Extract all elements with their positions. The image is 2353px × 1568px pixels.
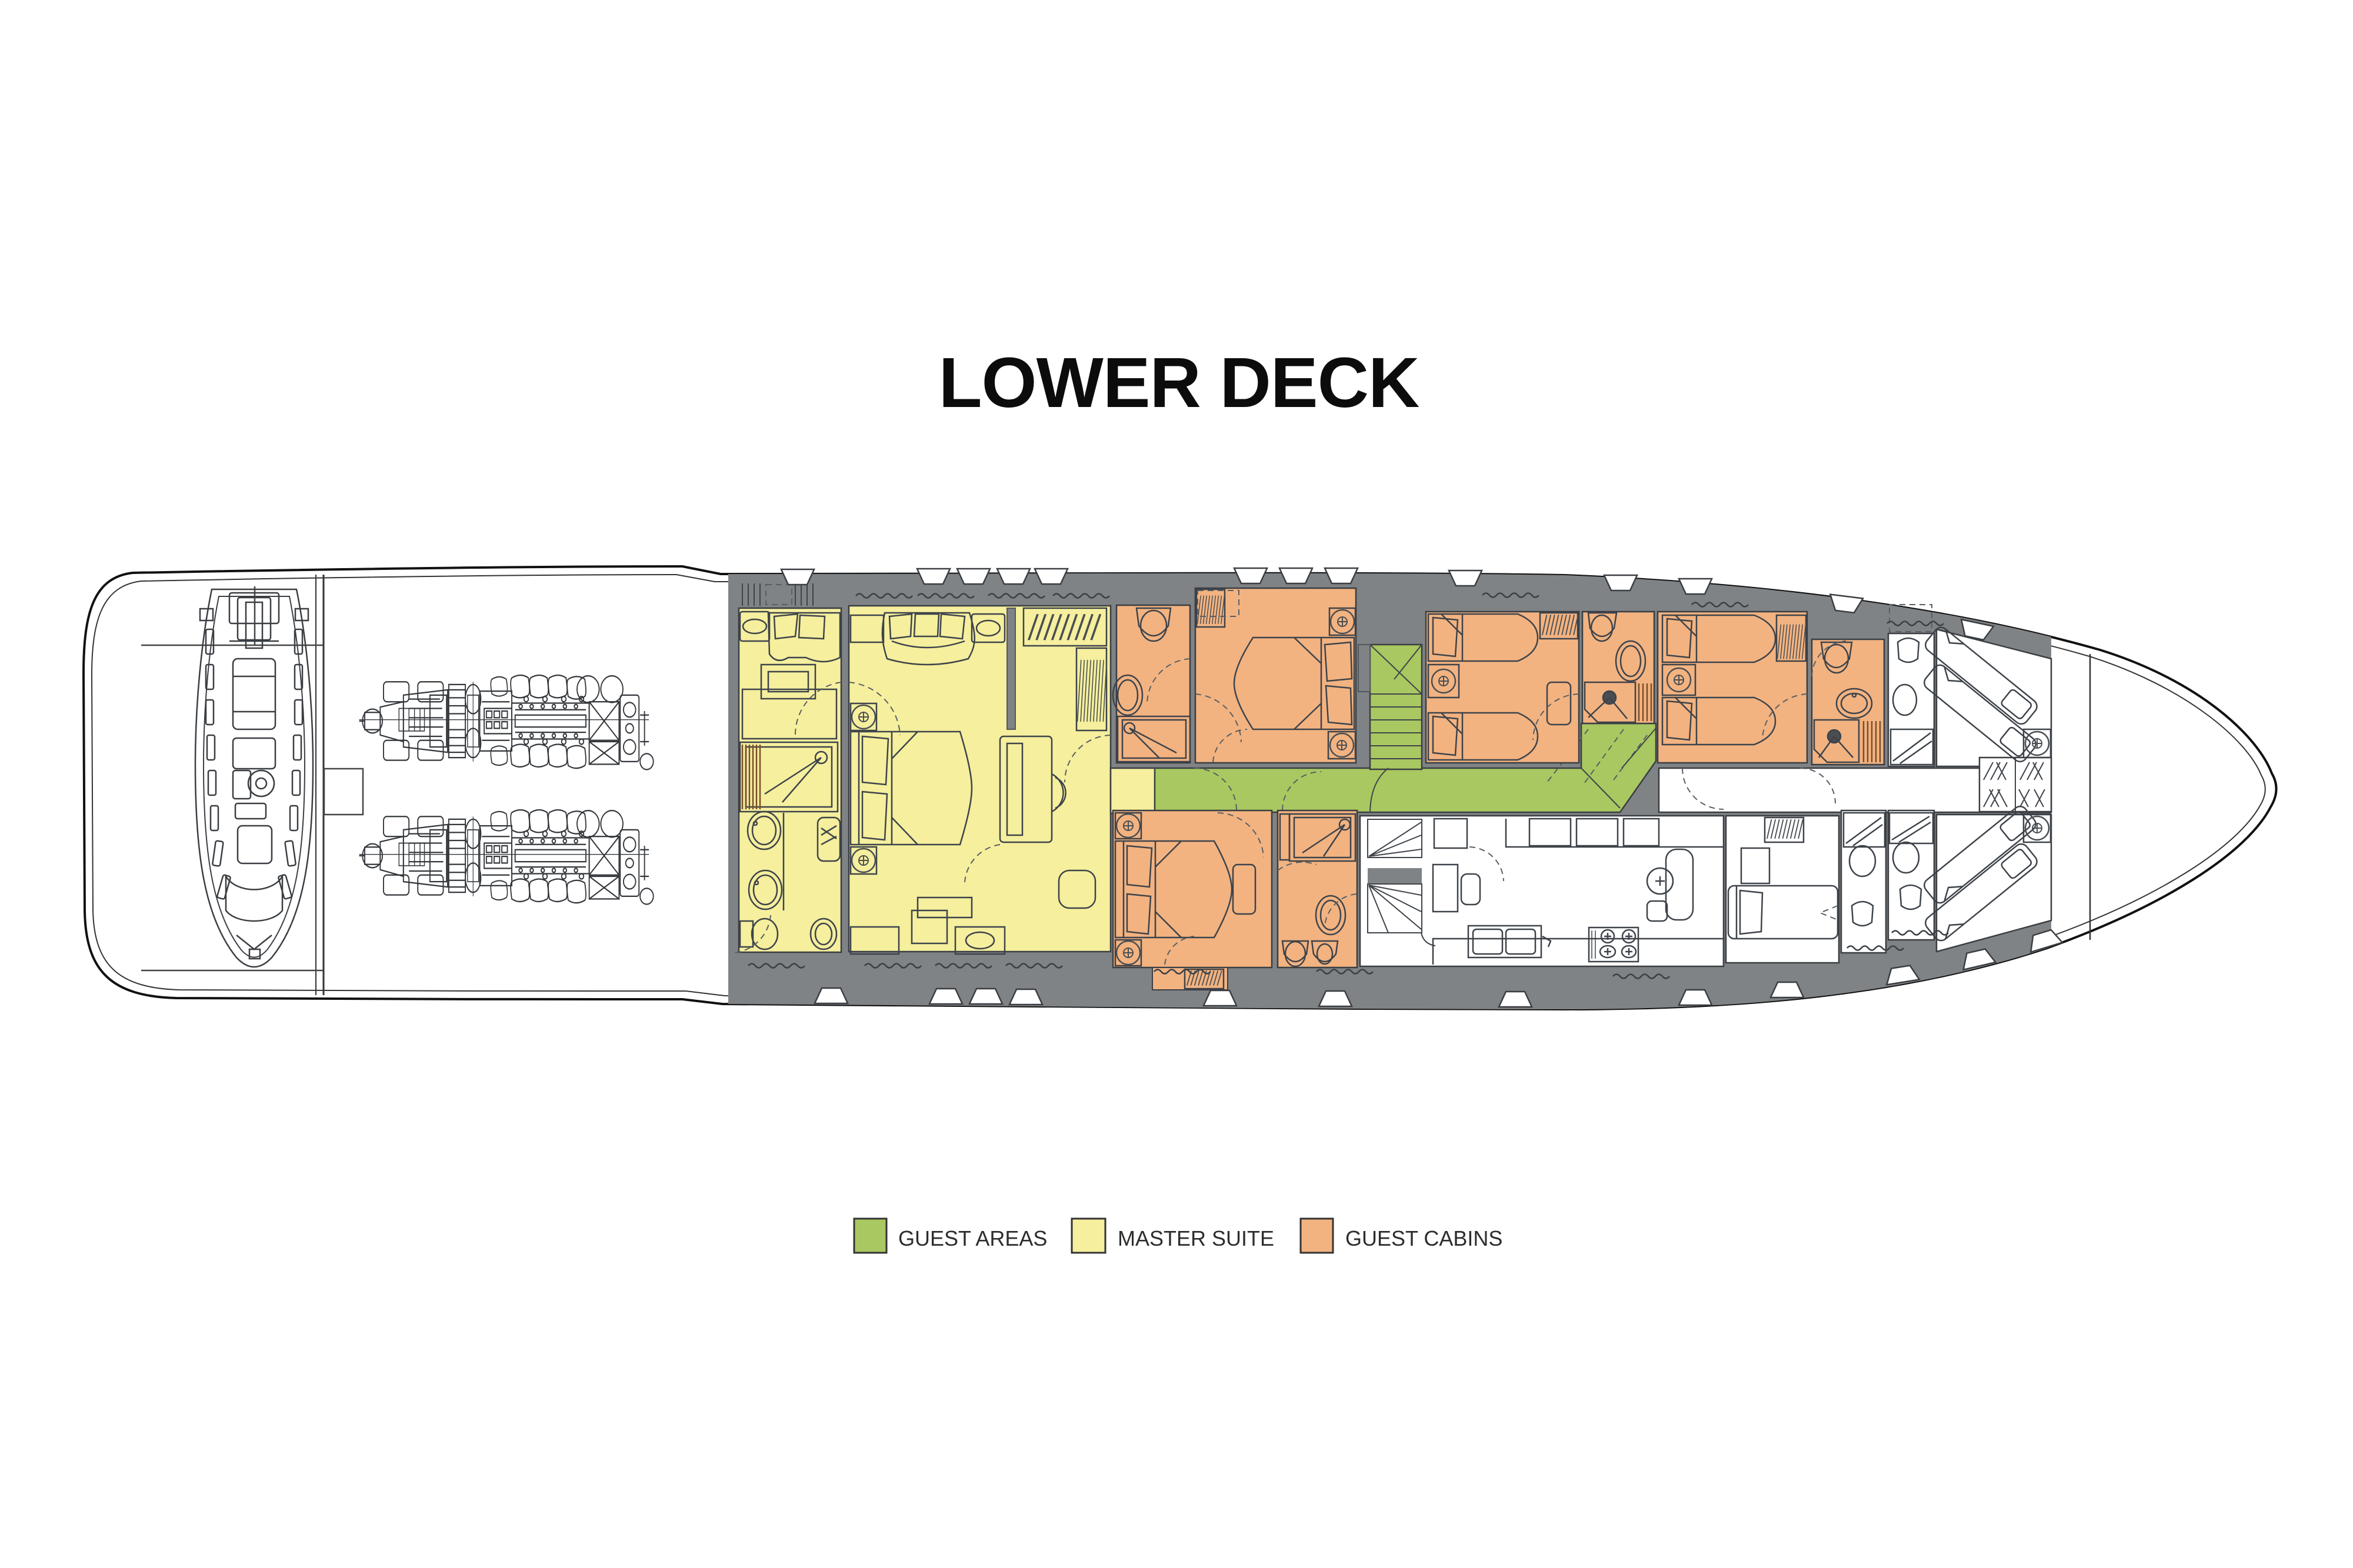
svg-text:MASTER SUITE: MASTER SUITE	[1118, 1226, 1274, 1250]
svg-text:LOWER DECK: LOWER DECK	[939, 342, 1419, 422]
svg-text:GUEST CABINS: GUEST CABINS	[1345, 1226, 1502, 1250]
svg-text:GUEST AREAS: GUEST AREAS	[898, 1226, 1047, 1250]
